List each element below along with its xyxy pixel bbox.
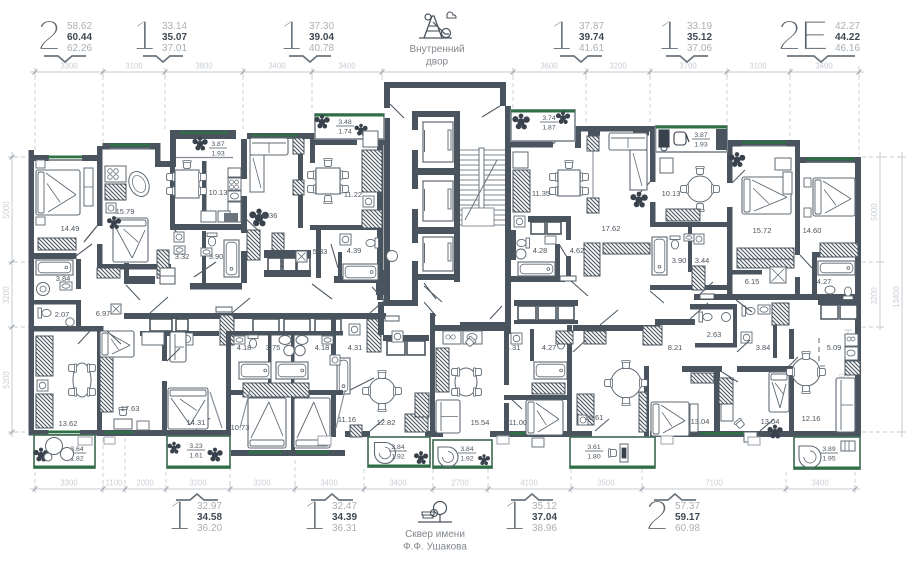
- svg-text:10.13: 10.13: [662, 189, 681, 198]
- svg-text:4.27: 4.27: [817, 277, 832, 286]
- svg-text:17.62: 17.62: [602, 224, 621, 233]
- svg-text:32.97: 32.97: [197, 501, 222, 512]
- svg-text:3400: 3400: [320, 479, 338, 488]
- svg-text:2.07: 2.07: [55, 310, 70, 319]
- svg-text:3600: 3600: [540, 62, 558, 71]
- svg-text:15.72: 15.72: [753, 226, 772, 235]
- svg-text:3.44: 3.44: [695, 256, 710, 265]
- svg-text:3.32: 3.32: [175, 252, 190, 261]
- svg-text:39.04: 39.04: [309, 32, 334, 43]
- svg-text:4.62: 4.62: [570, 246, 585, 255]
- svg-text:14.60: 14.60: [803, 226, 822, 235]
- svg-text:1.74: 1.74: [338, 129, 351, 136]
- svg-text:3.84: 3.84: [56, 274, 71, 283]
- svg-text:13.62: 13.62: [59, 419, 78, 428]
- svg-text:11.00: 11.00: [509, 418, 527, 427]
- svg-text:3200: 3200: [609, 62, 627, 71]
- svg-text:3.90: 3.90: [672, 256, 687, 265]
- svg-text:5000: 5000: [870, 203, 879, 221]
- svg-text:37.01: 37.01: [162, 43, 187, 54]
- svg-text:32.47: 32.47: [332, 501, 357, 512]
- svg-text:Сквер имени: Сквер имени: [405, 529, 465, 540]
- svg-text:62.26: 62.26: [67, 43, 92, 54]
- svg-text:2: 2: [37, 12, 60, 60]
- svg-text:1.80: 1.80: [587, 454, 600, 461]
- svg-text:14.49: 14.49: [61, 224, 80, 233]
- svg-text:6.97: 6.97: [96, 309, 111, 318]
- svg-text:13.04: 13.04: [761, 417, 780, 426]
- svg-text:10.73: 10.73: [231, 423, 250, 432]
- svg-text:3400: 3400: [338, 62, 356, 71]
- svg-text:Внутренний: Внутренний: [409, 44, 464, 55]
- svg-text:59.17: 59.17: [675, 512, 700, 523]
- svg-text:4.27: 4.27: [542, 343, 557, 352]
- svg-text:11.35: 11.35: [532, 189, 550, 198]
- svg-text:3.75: 3.75: [266, 343, 281, 352]
- svg-text:37.87: 37.87: [579, 21, 604, 32]
- svg-text:37.30: 37.30: [309, 21, 334, 32]
- svg-text:38.96: 38.96: [532, 523, 557, 534]
- svg-text:3400: 3400: [268, 62, 286, 71]
- svg-text:3300: 3300: [60, 479, 78, 488]
- svg-text:4.39: 4.39: [347, 246, 362, 255]
- svg-text:1.93: 1.93: [211, 151, 224, 158]
- svg-text:2700: 2700: [451, 479, 469, 488]
- svg-text:5200: 5200: [2, 371, 11, 389]
- svg-text:42.27: 42.27: [835, 21, 860, 32]
- svg-text:3.84: 3.84: [460, 446, 473, 453]
- svg-text:3.90: 3.90: [209, 252, 224, 261]
- svg-text:3400: 3400: [811, 479, 829, 488]
- svg-text:11.22: 11.22: [344, 190, 362, 199]
- svg-text:16.36: 16.36: [259, 211, 278, 220]
- svg-text:3.87: 3.87: [211, 141, 224, 148]
- svg-text:4.31: 4.31: [348, 343, 363, 352]
- svg-text:3.23: 3.23: [189, 443, 202, 450]
- svg-text:1.92: 1.92: [460, 456, 473, 463]
- svg-text:15.79: 15.79: [116, 207, 135, 216]
- svg-text:40.78: 40.78: [309, 43, 334, 54]
- svg-text:3400: 3400: [389, 479, 407, 488]
- svg-text:15.54: 15.54: [471, 418, 490, 427]
- svg-text:13.04: 13.04: [691, 417, 710, 426]
- svg-text:1: 1: [657, 12, 680, 60]
- svg-text:35.12: 35.12: [532, 501, 557, 512]
- svg-text:34.39: 34.39: [332, 512, 357, 523]
- svg-text:1.95: 1.95: [822, 456, 835, 463]
- svg-text:Ф.Ф. Ушакова: Ф.Ф. Ушакова: [403, 542, 467, 553]
- svg-text:3.89: 3.89: [822, 446, 835, 453]
- svg-text:1100: 1100: [106, 479, 123, 488]
- svg-text:12.82: 12.82: [377, 418, 396, 427]
- svg-text:57.37: 57.37: [675, 501, 700, 512]
- svg-text:39.74: 39.74: [579, 32, 604, 43]
- svg-text:11.16: 11.16: [338, 415, 356, 424]
- svg-text:5.09: 5.09: [827, 343, 842, 352]
- svg-text:двор: двор: [426, 57, 449, 68]
- svg-text:4.18: 4.18: [315, 343, 330, 352]
- svg-text:2Е: 2Е: [777, 12, 828, 60]
- svg-text:3500: 3500: [597, 479, 615, 488]
- svg-text:4.31: 4.31: [506, 343, 521, 352]
- svg-text:60.44: 60.44: [67, 32, 92, 43]
- svg-text:3200: 3200: [189, 479, 207, 488]
- svg-text:41.61: 41.61: [579, 43, 604, 54]
- svg-text:3300: 3300: [60, 62, 78, 71]
- svg-text:1.61: 1.61: [189, 453, 202, 460]
- svg-text:2000: 2000: [136, 479, 154, 488]
- svg-text:58.62: 58.62: [67, 21, 92, 32]
- svg-text:8.21: 8.21: [668, 343, 683, 352]
- svg-text:35.12: 35.12: [687, 32, 712, 43]
- svg-text:12.16: 12.16: [802, 414, 821, 423]
- svg-text:16.61: 16.61: [585, 413, 604, 422]
- svg-text:3800: 3800: [195, 62, 213, 71]
- svg-text:35.07: 35.07: [162, 32, 187, 43]
- svg-text:33.19: 33.19: [687, 21, 712, 32]
- svg-text:36.31: 36.31: [332, 523, 357, 534]
- svg-text:7100: 7100: [705, 479, 723, 488]
- svg-text:4100: 4100: [520, 479, 538, 488]
- svg-text:5.33: 5.33: [313, 247, 328, 256]
- svg-text:13400: 13400: [892, 285, 901, 307]
- svg-text:3.61: 3.61: [587, 444, 600, 451]
- svg-text:6.15: 6.15: [745, 277, 760, 286]
- svg-text:3400: 3400: [815, 62, 833, 71]
- svg-text:17.63: 17.63: [121, 404, 140, 413]
- svg-text:1.93: 1.93: [694, 142, 707, 149]
- svg-text:3.84: 3.84: [756, 343, 771, 352]
- svg-text:1.87: 1.87: [542, 125, 555, 132]
- svg-text:1: 1: [132, 12, 155, 60]
- svg-text:10.13: 10.13: [209, 188, 228, 197]
- svg-text:3200: 3200: [870, 287, 879, 305]
- svg-text:3200: 3200: [2, 286, 11, 304]
- svg-text:3100: 3100: [125, 62, 143, 71]
- svg-text:44.22: 44.22: [835, 32, 860, 43]
- svg-text:37.04: 37.04: [532, 512, 557, 523]
- svg-text:1: 1: [549, 12, 572, 60]
- svg-text:3100: 3100: [749, 62, 767, 71]
- svg-text:3.87: 3.87: [694, 132, 707, 139]
- svg-text:3.74: 3.74: [542, 115, 555, 122]
- svg-text:2.63: 2.63: [707, 330, 722, 339]
- svg-text:3.48: 3.48: [338, 119, 351, 126]
- svg-text:46.16: 46.16: [835, 43, 860, 54]
- svg-text:4.28: 4.28: [533, 246, 548, 255]
- svg-text:4.18: 4.18: [237, 343, 252, 352]
- svg-text:37.06: 37.06: [687, 43, 712, 54]
- svg-text:33.14: 33.14: [162, 21, 187, 32]
- svg-text:60.98: 60.98: [675, 523, 700, 534]
- svg-text:3700: 3700: [679, 62, 697, 71]
- svg-text:36.20: 36.20: [197, 523, 222, 534]
- svg-text:3200: 3200: [253, 479, 271, 488]
- svg-text:34.58: 34.58: [197, 512, 222, 523]
- svg-text:1: 1: [279, 12, 302, 60]
- svg-text:5000: 5000: [2, 201, 11, 219]
- svg-text:14.31: 14.31: [187, 418, 206, 427]
